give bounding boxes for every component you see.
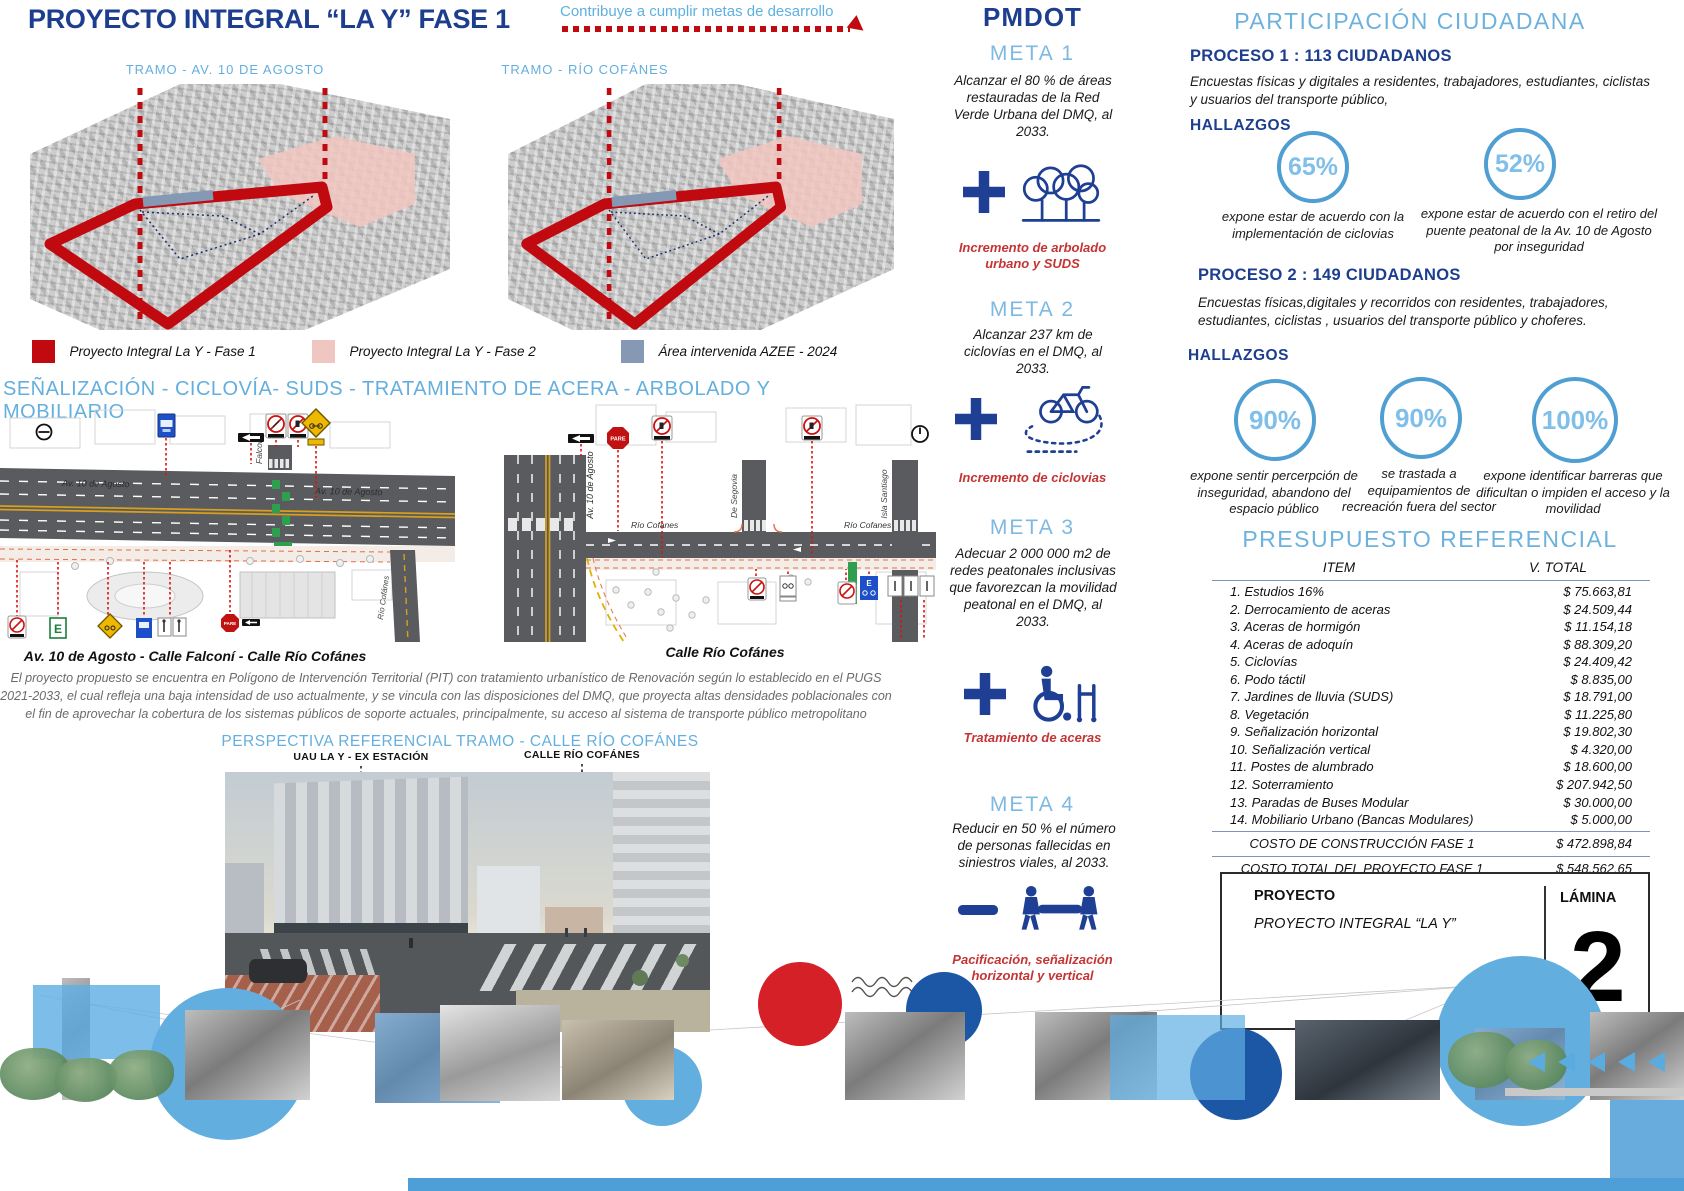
photo-building-right [613,772,710,944]
finding-pct: 52% [1495,150,1545,179]
legend-swatch-fase1 [32,340,55,363]
triangle-left-icon [1558,1052,1575,1072]
perspectiva-header: PERSPECTIVA REFERENCIAL TRAMO - CALLE RÍ… [150,733,770,751]
proceso1-desc: Encuestas físicas y digitales a resident… [1190,73,1650,109]
budget-row: 4. Aceras de adoquín$ 88.309,20 [1212,636,1650,654]
fase1-outline [50,187,327,324]
svg-text:PARE: PARE [224,621,236,626]
page-title: PROYECTO INTEGRAL “LA Y” FASE 1 [28,4,568,35]
row-item: 13. Paradas de Buses Modular [1212,794,1512,812]
no-parking-sign [8,616,26,638]
finding-caption-52: expone estar de acuerdo con el retiro de… [1420,206,1658,256]
map-right-overlay [508,84,894,330]
legend-item-fase2: Proyecto Integral La Y - Fase 2 [312,340,536,363]
row-item: 5. Ciclovías [1212,653,1512,671]
tramo-left-label: TRAMO - AV. 10 DE AGOSTO [30,62,420,77]
one-way-sign [242,619,260,626]
row-item: 14. Mobiliario Urbano (Bancas Modulares) [1212,811,1512,829]
lamina-label: LÁMINA [1560,890,1616,906]
blue-block-right [1610,1100,1684,1180]
minus-icon [958,904,998,916]
row-item: 3. Aceras de hormigón [1212,618,1512,636]
meta1-heading: META 1 [945,42,1120,66]
finding-circle-90a: 90% [1234,379,1316,461]
blue-bike-parking-sign: E [860,576,878,600]
map-left-overlay [30,84,450,330]
row-total: $ 19.802,30 [1512,723,1650,741]
diagram-right-caption: Calle Río Cofánes [600,644,850,660]
photo-pedestrian [565,928,568,937]
wheelchair-icon [1020,662,1102,726]
street-label-av10-b: Av. 10 de Agosto [314,486,383,497]
finding-pct: 90% [1249,405,1301,436]
row-total: $ 207.942,50 [1512,776,1650,794]
finding-circle-100: 100% [1532,377,1618,463]
subtotal-label: COSTO DE CONSTRUCCIÓN FASE 1 [1212,834,1512,854]
meta2-heading: META 2 [945,298,1120,322]
photo-building-mid [477,866,540,934]
meta3-caption: Tratamiento de aceras [945,730,1120,746]
rule [1212,856,1650,857]
row-total: $ 8.835,00 [1512,671,1650,689]
pare-sign: PARE [221,614,239,632]
plus-icon [955,398,997,440]
participacion-title: PARTICIPACIÓN CIUDADANA [1150,8,1670,35]
pedestrian-signs [888,576,934,596]
street-rio-cofanes [390,550,420,642]
legend-label: Proyecto Integral La Y - Fase 1 [69,344,255,359]
finding-pct: 100% [1542,405,1609,436]
rule [1212,580,1650,581]
stretcher-icon [1012,882,1108,938]
proceso1-hallazgos-label: HALLAZGOS [1190,117,1291,135]
sidewalk-band [0,546,455,562]
finding-caption-65: expone estar de acuerdo con la implement… [1217,209,1409,242]
row-item: 2. Derrocamiento de aceras [1212,601,1512,619]
street-label-de-segovia: De Segovia [729,474,739,518]
meta1-icon-row [945,155,1120,229]
azee-bar [143,195,213,202]
proceso2-desc: Encuestas físicas,digitales y recorridos… [1198,294,1663,330]
meta1-text: Alcanzar el 80 % de áreas restauradas de… [948,72,1118,140]
row-total: $ 30.000,00 [1512,794,1650,812]
meta4-text: Reducir en 50 % el número de personas fa… [945,820,1123,871]
no-parking-sign [748,578,766,600]
project-description: El proyecto propuesto se encuentra en Po… [0,669,892,723]
ciclovia-sign [780,576,796,601]
photo-pedestrian [584,928,587,937]
aerial-map-left [30,84,450,330]
proceso2-header: PROCESO 2 : 149 CIUDADANOS [1198,266,1461,285]
meta2-text: Alcanzar 237 km de ciclovías en el DMQ, … [948,326,1118,377]
triangle-arrows [1528,1052,1665,1072]
photo-label-right: CALLE RÍO COFÁNES [502,749,662,761]
wave-lines [852,978,912,997]
row-total: $ 18.791,00 [1512,688,1650,706]
finding-pct: 90% [1395,403,1447,434]
budget-row: 10. Señalización vertical$ 4.320,00 [1212,741,1650,759]
legend-swatch-azee [621,340,644,363]
svg-text:E: E [866,579,872,588]
svg-text:PARE: PARE [610,437,625,443]
budget-row: 9. Señalización horizontal$ 19.802,30 [1212,723,1650,741]
finding-circle-52: 52% [1484,128,1556,200]
row-item: 8. Vegetación [1212,706,1512,724]
pare-sign: PARE [607,427,629,449]
bottom-blue-bar [408,1178,1684,1191]
legend-swatch-fase2 [312,340,335,363]
collage-photo [440,1005,560,1101]
budget-row: 3. Aceras de hormigón$ 11.154,18 [1212,618,1650,636]
row-total: $ 4.320,00 [1512,741,1650,759]
budget-row: 1. Estudios 16%$ 75.663,81 [1212,583,1650,601]
triangle-left-icon [1588,1052,1605,1072]
meta3-icon-row [945,662,1120,726]
plus-icon [964,673,1006,715]
collage-blue-overlay [1110,1015,1245,1100]
meta2-caption: Incremento de ciclovias [945,470,1120,486]
diagram-left-caption: Av. 10 de Agosto - Calle Falconí - Calle… [0,648,390,664]
row-total: $ 88.309,20 [1512,636,1650,654]
legend-label: Proyecto Integral La Y - Fase 2 [349,344,535,359]
meta3-heading: META 3 [945,516,1120,540]
photo-building-far [225,863,264,936]
col-item: ITEM [1212,560,1466,578]
row-item: 4. Aceras de adoquín [1212,636,1512,654]
collage-photo [562,1020,674,1100]
meta3-text: Adecuar 2 000 000 m2 de redes peatonales… [948,545,1118,630]
budget-row: 2. Derrocamiento de aceras$ 24.509,44 [1212,601,1650,619]
row-item: 9. Señalización horizontal [1212,723,1512,741]
finding-caption-90a: expone sentir percerpción de inseguridad… [1186,468,1362,518]
row-item: 11. Postes de alumbrado [1212,758,1512,776]
finding-circle-90b: 90% [1380,377,1462,459]
row-total: $ 18.600,00 [1512,758,1650,776]
one-way-sign [568,434,594,443]
trees-icon [1019,155,1103,229]
collage-photo [845,1012,965,1100]
row-total: $ 24.409,42 [1512,653,1650,671]
no-left-turn-sign [266,414,286,438]
photo-building-brick [545,907,603,936]
budget-row: 11. Postes de alumbrado$ 18.600,00 [1212,758,1650,776]
collage-photo-dark [1295,1020,1440,1100]
budget-row: 5. Ciclovías$ 24.409,42 [1212,653,1650,671]
no-parking-sign [838,582,856,604]
budget-row: 14. Mobiliario Urbano (Bancas Modulares)… [1212,811,1650,829]
green-e-sign: E [50,618,66,638]
row-total: $ 11.225,80 [1512,706,1650,724]
budget-table: ITEM V. TOTAL 1. Estudios 16%$ 75.663,81… [1212,560,1650,879]
row-item: 10. Señalización vertical [1212,741,1512,759]
fase1-outline [526,187,781,324]
one-way-sign [238,433,264,442]
proceso1-header: PROCESO 1 : 113 CIUDADANOS [1190,47,1452,66]
budget-row: 8. Vegetación$ 11.225,80 [1212,706,1650,724]
dotted-arrow-line [562,26,850,32]
triangle-left-icon [1618,1052,1635,1072]
decor-circle-red [758,962,842,1046]
fase2-area [718,136,862,227]
finding-pct: 65% [1288,153,1338,182]
row-item: 12. Soterramiento [1212,776,1512,794]
row-total: $ 11.154,18 [1512,618,1650,636]
street-label-rio-b: Río Cofanes [844,520,892,530]
proyecto-label: PROYECTO [1254,888,1335,904]
row-item: 6. Podo táctil [1212,671,1512,689]
row-total: $ 24.509,44 [1512,601,1650,619]
no-parking-sign [802,416,822,440]
svg-text:E: E [54,622,62,636]
street-label-av10: Av. 10 de Agosto [585,451,595,519]
finding-circle-65: 65% [1277,131,1349,203]
row-total: $ 5.000,00 [1512,811,1650,829]
budget-row: 12. Soterramiento$ 207.942,50 [1212,776,1650,794]
street-label-av10-a: Av. 10 de Agosto [61,478,130,489]
clock-icon [912,426,928,442]
street-label-rio-cofanes: Río Cofánes [376,575,391,620]
pedestrian-signs [158,618,186,636]
fase2-area [258,136,415,227]
hatched-building [240,572,335,618]
azee-bar [612,195,676,202]
aerial-map-right [508,84,894,330]
poster: PROYECTO INTEGRAL “LA Y” FASE 1 Contribu… [0,0,1684,1191]
rule [1212,831,1650,832]
presupuesto-title: PRESUPUESTO REFERENCIAL [1180,526,1680,553]
row-item: 7. Jardines de lluvia (SUDS) [1212,688,1512,706]
bus-stop-sign [158,414,175,437]
budget-row: 13. Paradas de Buses Modular$ 30.000,00 [1212,794,1650,812]
meta2-icon-row [940,384,1125,454]
meta1-caption: Incremento de arbolado urbano y SUDS [945,240,1120,272]
collage-blue-overlay-tower [33,985,160,1059]
meta4-icon-row [940,882,1125,938]
col-total: V. TOTAL [1466,560,1650,578]
triangle-left-icon [1528,1052,1545,1072]
bicycle-icon [1011,384,1111,454]
street-label-rio-a: Río Cofanes [631,520,679,530]
photo-tower [274,776,468,939]
pmdot-title: PMDOT [945,2,1120,33]
meta4-heading: META 4 [945,793,1120,817]
tagline: Contribuye a cumplir metas de desarrollo [560,3,870,20]
plus-icon [963,171,1005,213]
budget-row: 6. Podo táctil$ 8.835,00 [1212,671,1650,689]
budget-subtotal-row: COSTO DE CONSTRUCCIÓN FASE 1$ 472.898,84 [1212,834,1650,854]
street-diagram-left: Av. 10 de Agosto Av. 10 de Agosto Falcon… [0,400,455,642]
collage-photo [185,1010,310,1100]
triangle-left-icon [1648,1052,1665,1072]
street-label-isla-santiago: Isla Santiago [879,469,889,518]
row-item: 1. Estudios 16% [1212,583,1512,601]
budget-row: 7. Jardines de lluvia (SUDS)$ 18.791,00 [1212,688,1650,706]
subtotal-value: $ 472.898,84 [1512,834,1650,854]
no-parking-sign [652,416,672,440]
street-diagram-right: Av. 10 de Agosto Río Cofanes Río Cofanes… [456,400,936,642]
blue-info-sign [136,618,152,638]
legend-item-azee: Área intervenida AZEE - 2024 [621,340,837,363]
proceso2-hallazgos-label: HALLAZGOS [1188,347,1289,365]
street-isla-santiago [892,460,918,642]
proyecto-name: PROYECTO INTEGRAL “LA Y” [1254,916,1456,932]
tramo-right-label: TRAMO - RÍO COFÁNES [460,62,710,77]
no-stopping-icon [37,425,52,440]
legend-item-fase1: Proyecto Integral La Y - Fase 1 [32,340,256,363]
finding-caption-100: expone identificar barreras que dificult… [1474,468,1672,518]
row-total: $ 75.663,81 [1512,583,1650,601]
budget-header: ITEM V. TOTAL [1212,560,1650,578]
legend-label: Área intervenida AZEE - 2024 [658,344,837,359]
